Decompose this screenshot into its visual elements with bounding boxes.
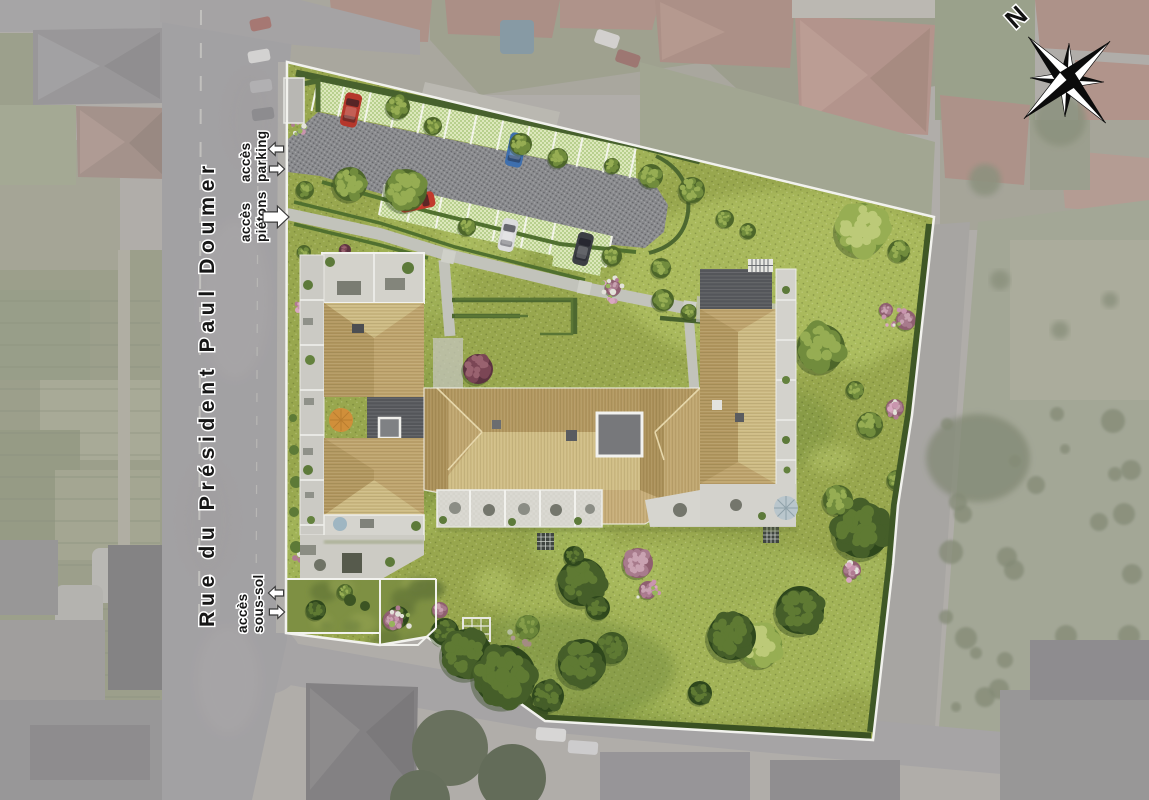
svg-text:sous-sol: sous-sol [251, 574, 266, 633]
svg-text:accès: accès [238, 142, 253, 182]
svg-text:parking: parking [254, 130, 269, 182]
svg-text:accès: accès [238, 202, 253, 242]
svg-text:accès: accès [235, 593, 250, 633]
svg-text:Rue du Président Paul Doumer: Rue du Président Paul Doumer [195, 160, 219, 627]
